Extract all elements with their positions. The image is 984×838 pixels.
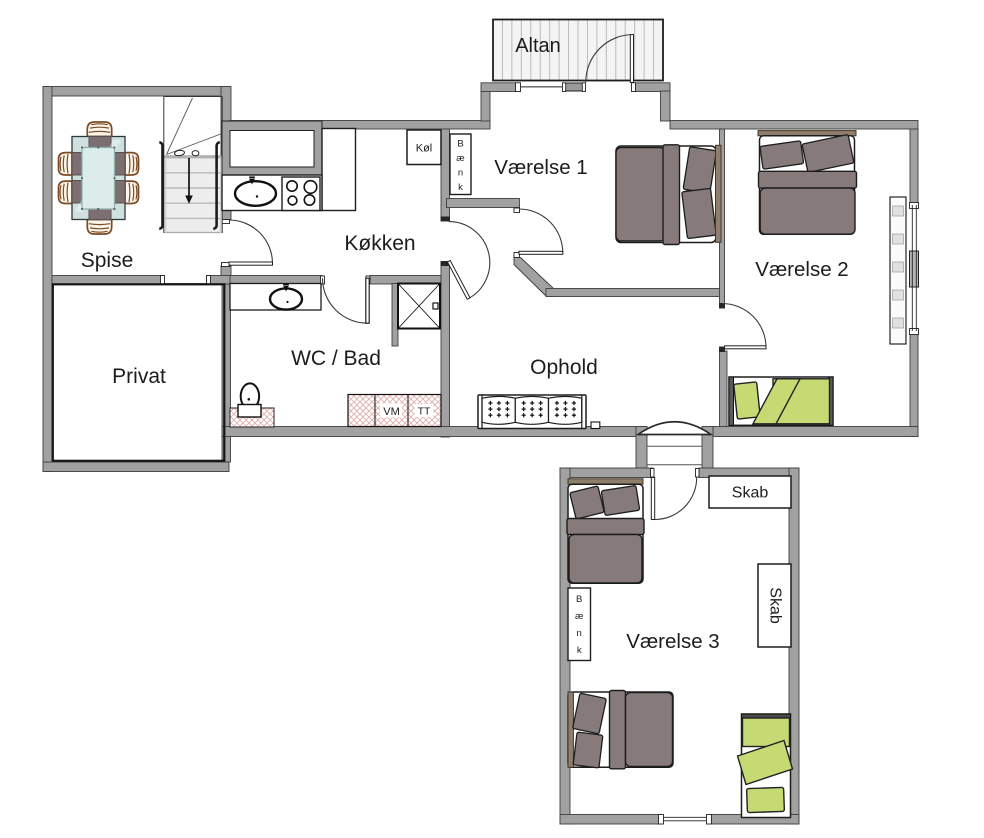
svg-text:n: n (458, 168, 463, 179)
svg-text:Værelse 1: Værelse 1 (494, 156, 587, 179)
svg-text:n: n (577, 628, 582, 639)
svg-text:Køl: Køl (416, 143, 433, 155)
svg-text:Privat: Privat (112, 365, 166, 388)
svg-text:B: B (576, 594, 582, 605)
svg-text:k: k (458, 182, 463, 193)
svg-text:Ophold: Ophold (530, 356, 598, 379)
svg-text:Spise: Spise (81, 249, 134, 272)
svg-text:æ: æ (456, 153, 465, 164)
svg-text:VM: VM (383, 406, 400, 418)
svg-text:Skab: Skab (732, 485, 769, 502)
svg-text:B: B (457, 139, 463, 150)
svg-text:Altan: Altan (515, 35, 561, 57)
svg-text:Skab: Skab (766, 587, 783, 624)
svg-text:k: k (577, 645, 582, 656)
svg-text:æ: æ (575, 611, 584, 622)
svg-text:WC / Bad: WC / Bad (291, 347, 381, 370)
svg-text:Køkken: Køkken (344, 232, 415, 255)
svg-text:Værelse 2: Værelse 2 (755, 258, 848, 281)
svg-text:Værelse 3: Værelse 3 (626, 630, 719, 653)
svg-text:TT: TT (418, 406, 431, 418)
